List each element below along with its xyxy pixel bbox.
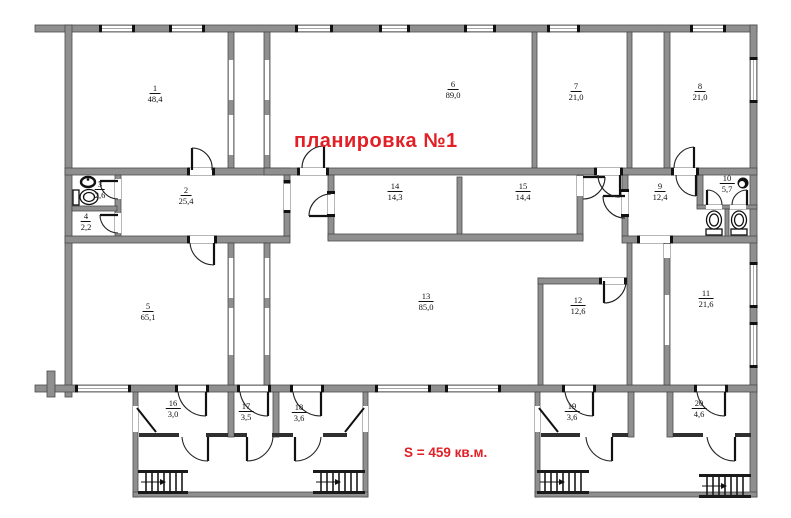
room-label-17: 173,5 — [239, 402, 254, 422]
room-label-8: 821,0 — [693, 82, 708, 102]
room-label-15: 1514,4 — [516, 182, 531, 202]
room-label-19: 193,6 — [565, 402, 580, 422]
room-label-7: 721,0 — [569, 82, 584, 102]
room-label-2: 225,4 — [179, 186, 194, 206]
room-label-16: 163,0 — [166, 399, 181, 419]
stairs-icon — [537, 470, 589, 494]
total-area-note: S = 459 кв.м. — [404, 445, 487, 460]
stairs-icon — [313, 470, 365, 494]
room-label-14: 1414,3 — [388, 182, 403, 202]
room-label-10: 105,7 — [720, 174, 735, 194]
floor-plan: 148,4 225,4 32,6 42,2 565,1 689,0 721,0 … — [0, 0, 791, 518]
wc-sink-icon — [738, 178, 749, 189]
plan-title: планировка №1 — [294, 130, 458, 153]
room-label-6: 689,0 — [446, 80, 461, 100]
interior-walls — [65, 32, 757, 385]
outer-walls — [35, 25, 757, 497]
stairs-icon — [138, 470, 188, 494]
sink-icon — [81, 177, 95, 187]
room-label-3: 32,6 — [95, 180, 106, 200]
wc-toilet-icon — [731, 211, 747, 235]
room-label-5: 565,1 — [141, 302, 156, 322]
room-label-20: 204,6 — [692, 399, 707, 419]
room-label-9: 912,4 — [653, 182, 668, 202]
jamb-caps — [75, 25, 758, 393]
room-label-13: 1385,0 — [419, 292, 434, 312]
stairs-icon — [699, 474, 751, 498]
floor-plan-drawing — [0, 0, 791, 518]
room-label-4: 42,2 — [81, 212, 92, 232]
windows — [78, 26, 756, 391]
room-label-12: 1212,6 — [571, 296, 586, 316]
room-label-1: 148,4 — [148, 84, 163, 104]
room-label-11: 1121,6 — [699, 289, 714, 309]
wc-toilet-icon — [706, 211, 722, 235]
room-label-18: 183,6 — [292, 403, 307, 423]
